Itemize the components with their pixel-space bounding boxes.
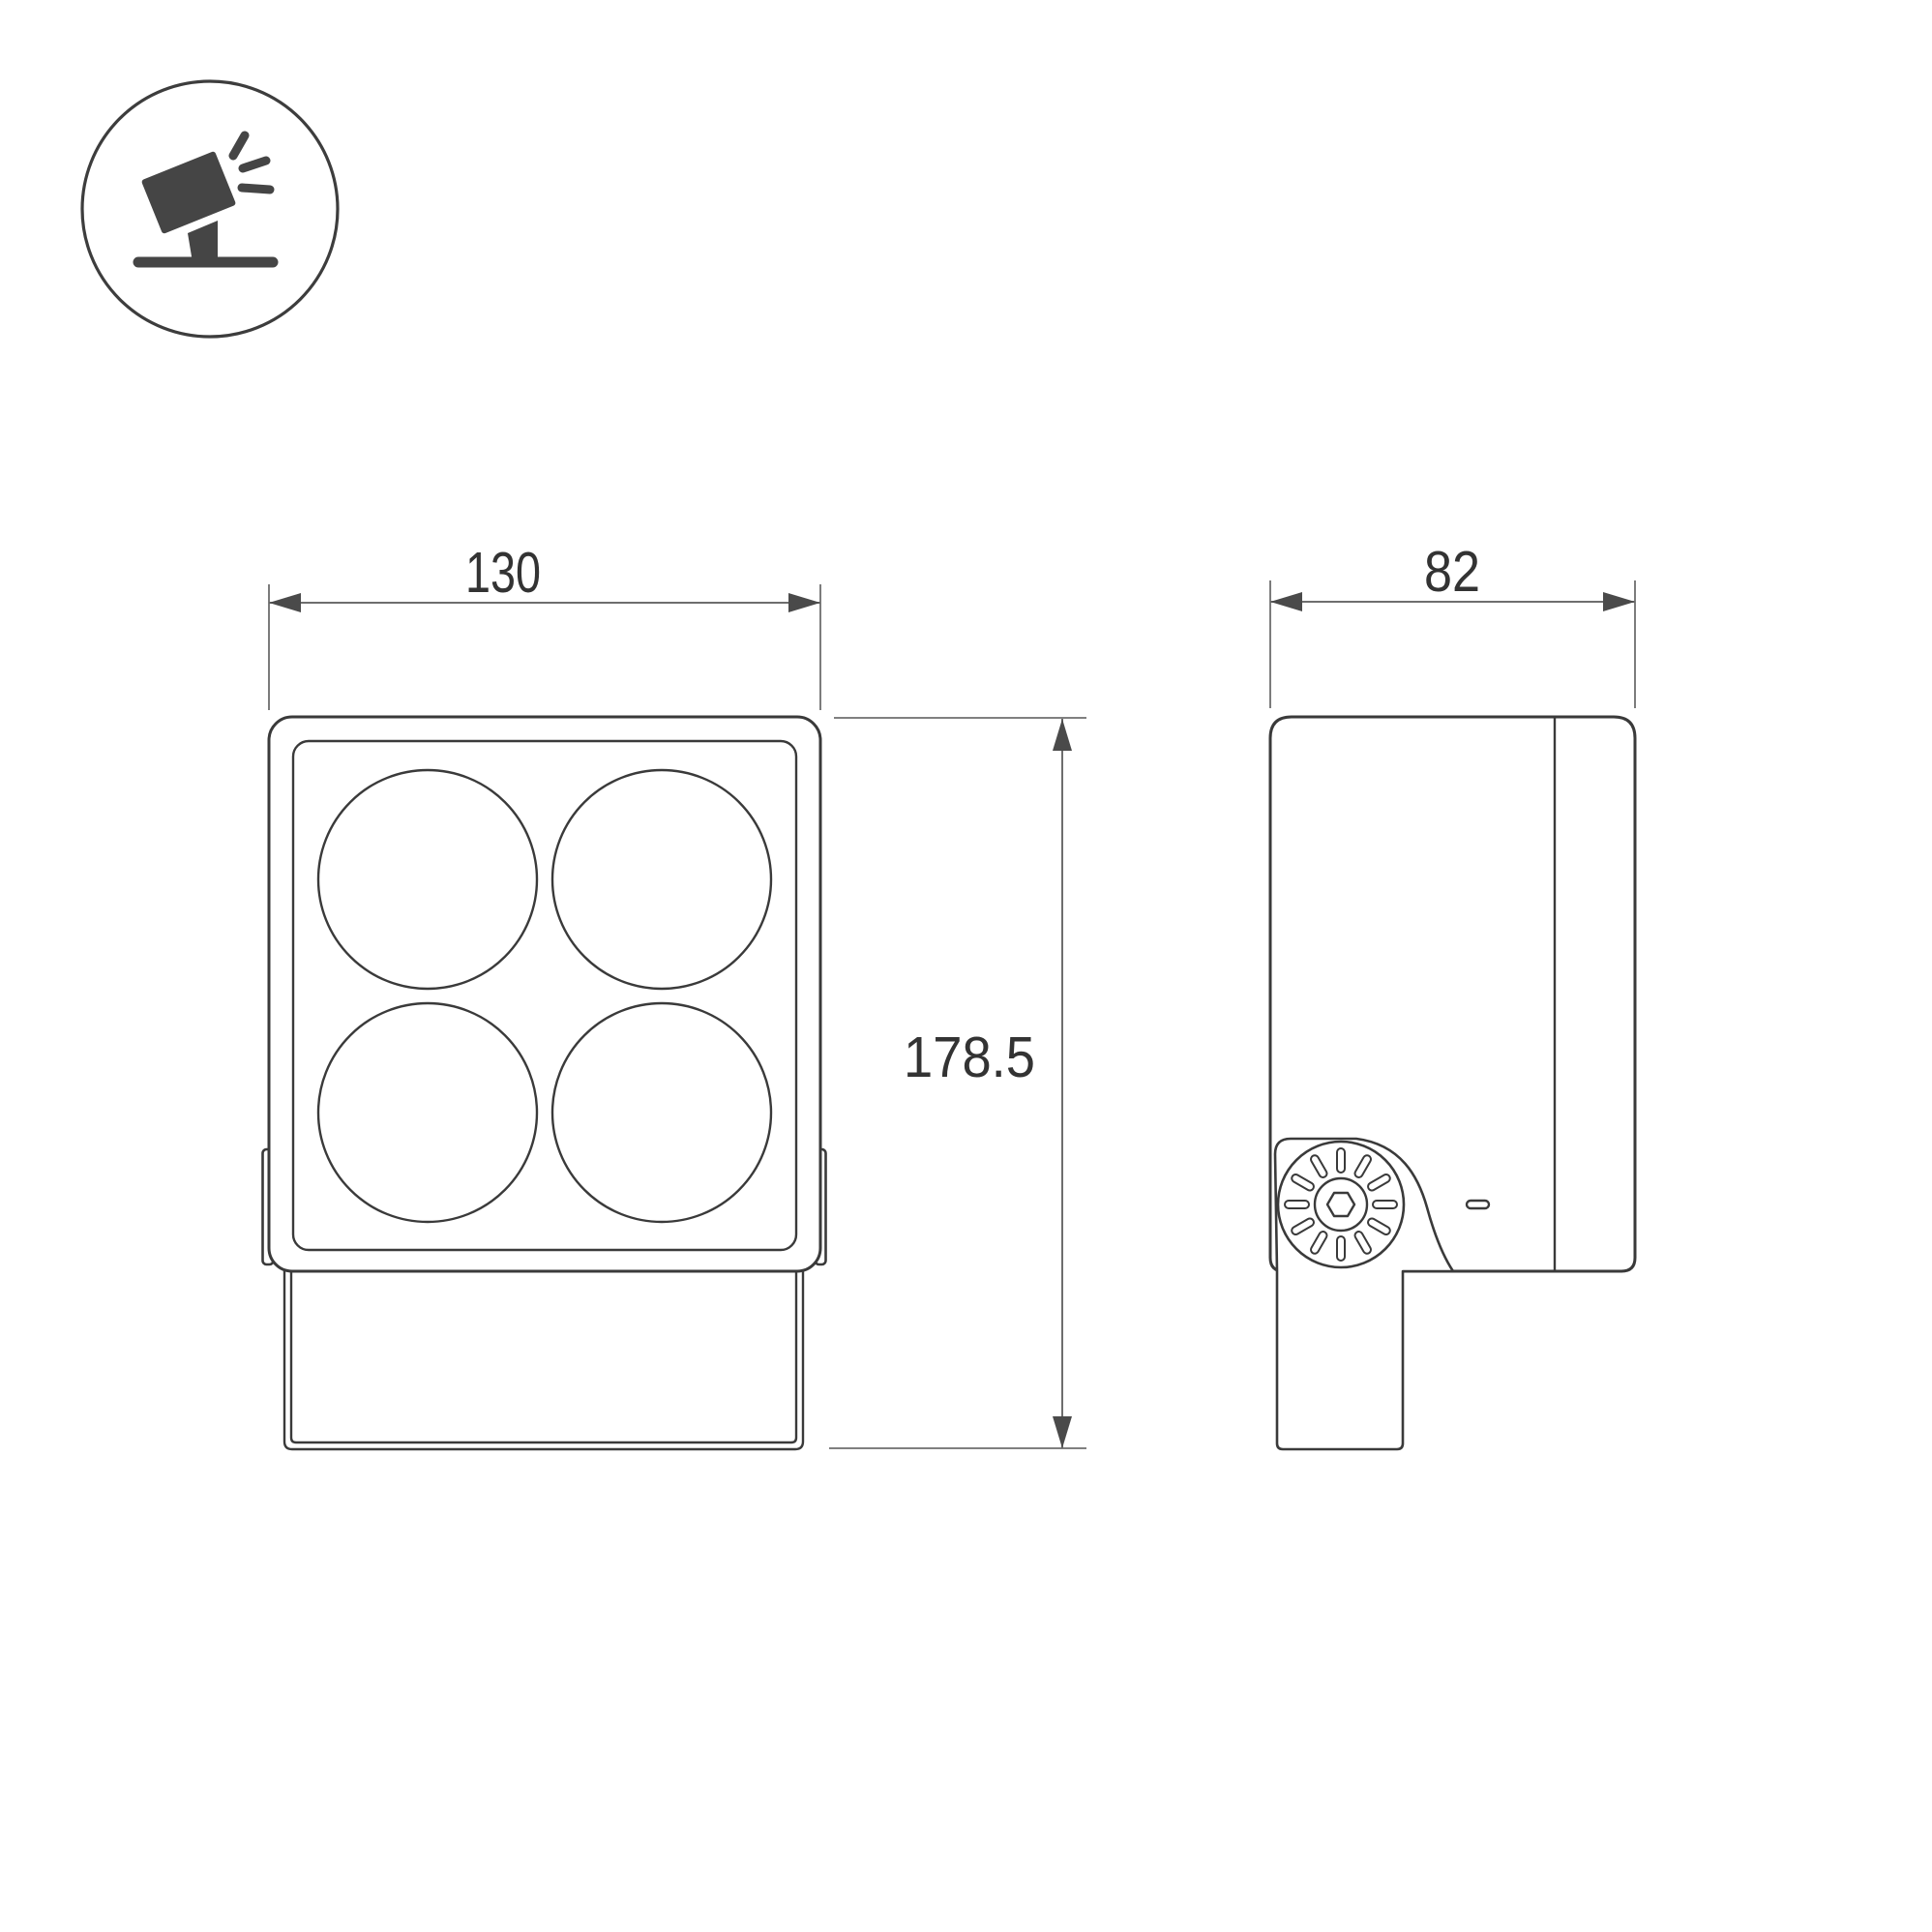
arrowhead-right-icon [1603,592,1635,611]
dimension-drawing: 130 82 178.5 [0,0,1932,1932]
pivot-knob [1278,1142,1404,1267]
arrowhead-left-icon [269,593,301,612]
floodlight-icon [138,135,273,262]
side-view [1270,717,1635,1449]
dimension-height: 178.5 [829,718,1086,1448]
bracket-base-inner [291,1270,796,1442]
dimension-height-label: 178.5 [904,1025,1035,1089]
product-type-icon [82,81,338,337]
dimension-depth-label: 82 [1424,540,1480,604]
dimension-depth: 82 [1270,540,1635,708]
dimension-width: 130 [269,541,820,710]
arrowhead-right-icon [788,593,820,612]
arrowhead-up-icon [1053,719,1072,751]
bracket-base-outer [284,1270,803,1449]
dimension-drawing-page: 130 82 178.5 [0,0,1932,1932]
arrowhead-down-icon [1053,1416,1072,1448]
front-view [263,717,826,1449]
dimension-width-label: 130 [465,541,541,605]
arrowhead-left-icon [1270,592,1302,611]
knob-outer-circle [1278,1142,1404,1267]
floodlight-head-glyph [141,151,237,234]
light-rays-glyph [233,135,270,190]
floodlight-post-glyph [188,221,218,262]
